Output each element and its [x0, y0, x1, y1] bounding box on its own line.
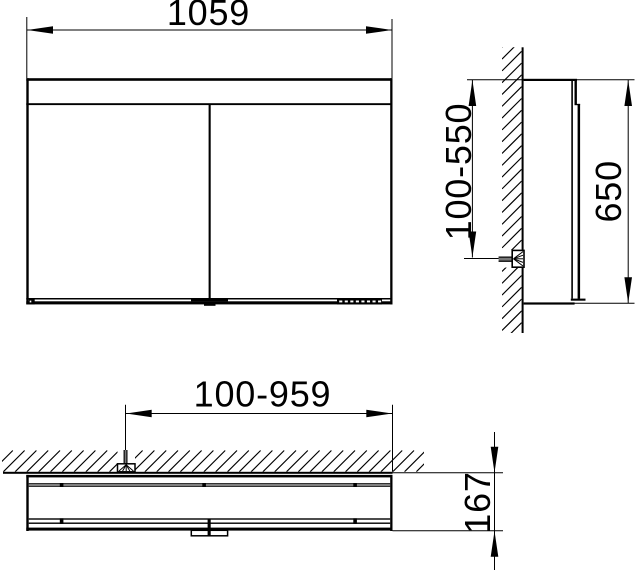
svg-text:167: 167	[457, 471, 498, 533]
svg-text:100-959: 100-959	[194, 374, 332, 415]
svg-text:650: 650	[588, 160, 629, 222]
svg-text:100-550: 100-550	[438, 103, 479, 241]
svg-text:1059: 1059	[167, 0, 250, 33]
